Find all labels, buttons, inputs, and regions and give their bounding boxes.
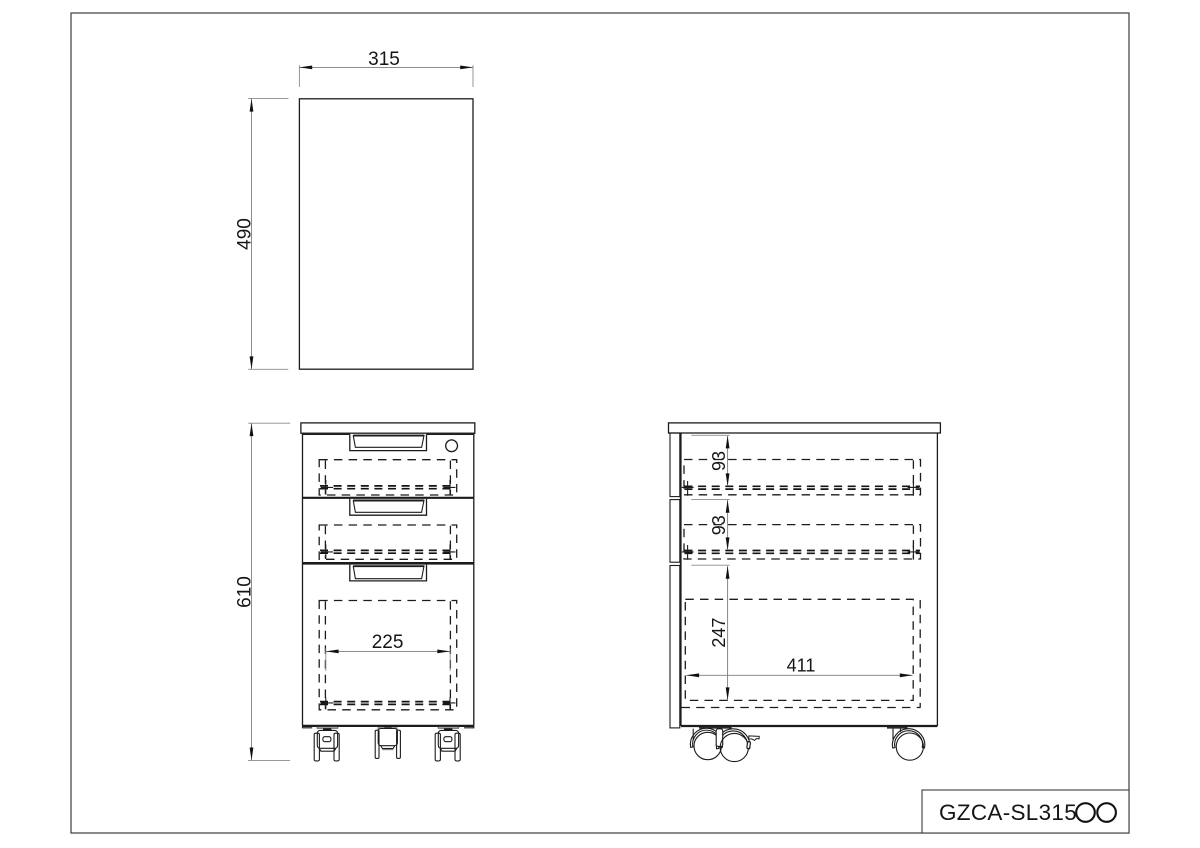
svg-text:247: 247 bbox=[709, 618, 729, 648]
svg-text:93: 93 bbox=[709, 451, 729, 471]
svg-text:315: 315 bbox=[368, 49, 400, 70]
svg-text:GZCA-SL315: GZCA-SL315 bbox=[939, 800, 1077, 825]
svg-text:610: 610 bbox=[234, 576, 255, 608]
svg-text:490: 490 bbox=[234, 218, 255, 250]
svg-text:225: 225 bbox=[372, 632, 404, 653]
svg-text:93: 93 bbox=[709, 515, 729, 535]
svg-text:411: 411 bbox=[787, 655, 816, 675]
